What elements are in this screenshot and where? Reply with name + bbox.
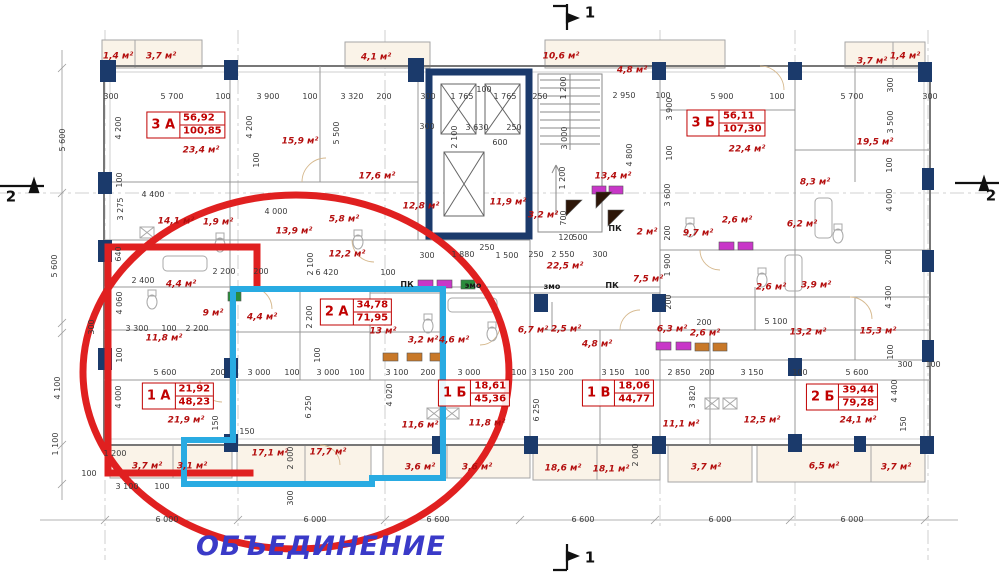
room-area-label: 1,4 м² [103, 53, 133, 62]
room-area-label: 11,1 м² [663, 421, 700, 430]
dimension-label: 300 [897, 361, 912, 369]
dimension-label-vertical: 100 [116, 347, 124, 362]
section-marker-number: 2 [986, 189, 996, 204]
dimension-label-vertical: 300 [887, 77, 895, 92]
apartment-area-living: 56,92 [180, 113, 225, 126]
apartment-box: 3 Б56,11107,30 [686, 110, 765, 137]
dimension-label: 6 600 [572, 516, 595, 524]
dimension-label: 3 630 [466, 124, 489, 132]
dimension-label: 6 000 [156, 516, 179, 524]
apartment-area-living: 39,44 [839, 385, 877, 398]
room-area-label: 17,7 м² [310, 449, 347, 458]
dimension-label: 100 [302, 93, 317, 101]
dimension-label: 3 150 [602, 369, 625, 377]
apartment-area-total: 44,77 [615, 394, 653, 406]
room-area-label: 6,3 м² [657, 326, 687, 335]
apartment-code: 3 А [147, 113, 180, 138]
dimension-label: 100 [380, 269, 395, 277]
room-area-label: 2,5 м² [551, 326, 581, 335]
dimension-label: 200 [210, 369, 225, 377]
room-area-label: 11,9 м² [490, 199, 527, 208]
apartment-area-total: 107,30 [720, 124, 765, 136]
room-area-label: 6,7 м² [518, 327, 548, 336]
dimension-label-vertical: 2 000 [632, 444, 640, 467]
room-area-label: 3,9 м² [801, 282, 831, 291]
dimension-label: 100 [284, 369, 299, 377]
dimension-label-vertical: 1 200 [559, 167, 567, 190]
dimension-label: 6 000 [709, 516, 732, 524]
room-area-label: 6,2 м² [787, 221, 817, 230]
room-area-label: 8,3 м² [800, 179, 830, 188]
apartment-areas: 18,0644,77 [615, 381, 653, 406]
dimension-label: 3 000 [317, 369, 340, 377]
room-area-label: 3,7 м² [146, 53, 176, 62]
dimension-label: 200 [558, 369, 573, 377]
room-area-label: 12,8 м² [403, 203, 440, 212]
dimension-label: 120 [558, 234, 573, 242]
room-area-label: 13,2 м² [790, 329, 827, 338]
dimension-label: 600 [492, 139, 507, 147]
dimension-label: 2 200 [186, 325, 209, 333]
apartment-areas: 56,11107,30 [720, 111, 765, 136]
room-area-label: 15,9 м² [282, 138, 319, 147]
section-marker-number: 1 [585, 551, 595, 566]
dimension-label: 100 [925, 361, 940, 369]
dimension-label-vertical: 5 600 [51, 255, 59, 278]
room-area-label: 21,9 м² [168, 417, 205, 426]
room-area-label: 4,6 м² [439, 337, 469, 346]
room-area-label: 17,6 м² [359, 173, 396, 182]
dimension-label-vertical: 2 200 [306, 306, 314, 329]
dimension-label: 3 150 [741, 369, 764, 377]
apartment-box: 3 А56,92100,85 [146, 112, 225, 139]
apartment-areas: 39,4479,28 [839, 385, 877, 410]
tech-label: эмо [465, 282, 482, 290]
dimension-label-vertical: 100 [116, 172, 124, 187]
room-area-label: 9 м² [203, 310, 224, 319]
room-area-label: 4,8 м² [617, 67, 647, 76]
dimension-label: 5 900 [711, 93, 734, 101]
room-area-label: 1,9 м² [203, 219, 233, 228]
room-area-label: 15,3 м² [860, 328, 897, 337]
merge-caption: ОБЪЕДИНЕНИЕ [196, 531, 446, 562]
dimension-label: 100 [154, 483, 169, 491]
dimension-label: 100 [511, 369, 526, 377]
room-area-label: 22,5 м² [547, 263, 584, 272]
dimension-label: 3 000 [248, 369, 271, 377]
tech-label: змо [544, 283, 561, 291]
room-area-label: 5,8 м² [329, 216, 359, 225]
dimension-label-vertical: 100 [314, 347, 322, 362]
apartment-code: 2 Б [807, 385, 839, 410]
dimension-label-vertical: 300 [88, 319, 96, 334]
dimension-label-vertical: 6 250 [533, 399, 541, 422]
dimension-label: 100 [215, 93, 230, 101]
dimension-label: 300 [592, 251, 607, 259]
room-area-label: 3,2 м² [408, 337, 438, 346]
dimension-label: 100 [634, 369, 649, 377]
dimension-label: 300 [419, 123, 434, 131]
apartment-area-total: 48,23 [176, 397, 214, 409]
room-area-label: 11,8 м² [146, 335, 183, 344]
room-area-label: 2,6 м² [756, 284, 786, 293]
dimension-label: 100 [349, 369, 364, 377]
dimension-label-vertical: 100 [886, 157, 894, 172]
dimension-label: 1 200 [104, 450, 127, 458]
apartment-area-living: 18,61 [471, 381, 509, 394]
dimension-label-vertical: 4 200 [115, 117, 123, 140]
dimension-label: 2 850 [668, 369, 691, 377]
room-area-label: 1,4 м² [890, 53, 920, 62]
apartment-code: 1 В [583, 381, 615, 406]
room-area-label: 9,7 м² [683, 230, 713, 239]
room-area-label: 6,5 м² [809, 463, 839, 472]
dimension-label: 4 400 [142, 191, 165, 199]
apartment-area-living: 18,06 [615, 381, 653, 394]
room-area-label: 13,4 м² [595, 173, 632, 182]
dimension-label: 300 [103, 93, 118, 101]
apartment-box: 1 Б18,6145,36 [438, 380, 510, 407]
dimension-label: 300 [922, 93, 937, 101]
room-area-label: 2,6 м² [722, 217, 752, 226]
room-area-label: 24,1 м² [840, 417, 877, 426]
apartment-code: 2 А [321, 300, 354, 325]
dimension-label: 3 320 [341, 93, 364, 101]
room-area-label: 3,6 м² [462, 464, 492, 473]
dimension-label-vertical: 2 100 [307, 253, 315, 276]
room-area-label: 19,5 м² [857, 139, 894, 148]
dimension-label: 300 [419, 252, 434, 260]
room-area-label: 13,9 м² [276, 228, 313, 237]
room-area-label: 7,5 м² [633, 276, 663, 285]
dimension-label: 250 [479, 244, 494, 252]
apartment-box: 1 В18,0644,77 [582, 380, 654, 407]
room-area-label: 18,6 м² [545, 465, 582, 474]
room-area-label: 4,1 м² [361, 54, 391, 63]
dimension-label: 1 765 [451, 93, 474, 101]
dimension-label-vertical: 100 [666, 145, 674, 160]
dimension-label: 6 600 [427, 516, 450, 524]
room-area-label: 2,6 м² [690, 330, 720, 339]
room-area-label: 3,1 м² [177, 463, 207, 472]
dimension-label: 6 000 [841, 516, 864, 524]
dimension-label-vertical: 300 [287, 490, 295, 505]
dimension-label-vertical: 200 [665, 294, 673, 309]
dimension-label-vertical: 2 100 [451, 126, 459, 149]
dimension-label-vertical: 3 000 [561, 127, 569, 150]
apartment-box: 2 Б39,4479,28 [806, 384, 878, 411]
room-area-label: 11,8 м² [469, 420, 506, 429]
dimension-label: 500 [572, 234, 587, 242]
dimension-label: 100 [161, 325, 176, 333]
dimension-label-vertical: 2 000 [287, 447, 295, 470]
dimension-label: 3 900 [257, 93, 280, 101]
apartment-area-total: 45,36 [471, 394, 509, 406]
dimension-label-vertical: 3 900 [666, 98, 674, 121]
tech-label: ПК [608, 225, 621, 233]
dimension-label: 200 [253, 268, 268, 276]
dimension-label: 3 300 [126, 325, 149, 333]
dimension-label: 2 950 [613, 92, 636, 100]
dimension-label-vertical: 3 500 [887, 111, 895, 134]
dimension-label-vertical: 200 [885, 249, 893, 264]
dimension-label: 2 400 [132, 277, 155, 285]
apartment-areas: 56,92100,85 [180, 113, 225, 138]
dimension-label: 5 700 [161, 93, 184, 101]
room-area-label: 11,6 м² [402, 422, 439, 431]
dimension-label-vertical: 4 000 [115, 386, 123, 409]
dimension-label: 3 150 [532, 369, 555, 377]
room-area-label: 4,4 м² [247, 314, 277, 323]
room-area-label: 2 м² [637, 229, 658, 238]
dimension-label-vertical: 4 060 [116, 292, 124, 315]
apartment-area-total: 71,95 [354, 313, 392, 325]
dimension-label-vertical: 200 [664, 225, 672, 240]
dimension-label-vertical: 640 [115, 246, 123, 261]
dimension-label-vertical: 100 [887, 344, 895, 359]
dimension-label-vertical: 5 600 [59, 129, 67, 152]
dimension-label-vertical: 3 820 [689, 386, 697, 409]
apartment-code: 3 Б [687, 111, 719, 136]
dimension-label-vertical: 4 200 [246, 116, 254, 139]
dimension-label: 2 550 [552, 251, 575, 259]
dimension-label: 1 500 [496, 252, 519, 260]
section-marker-number: 1 [585, 6, 595, 21]
dimension-label-vertical: 4 000 [886, 189, 894, 212]
dimension-label-vertical: 4 800 [626, 144, 634, 167]
dimension-label: 150 [239, 428, 254, 436]
dimension-label-vertical: 4 300 [885, 286, 893, 309]
dimension-label-vertical: 4 100 [54, 377, 62, 400]
room-area-label: 14,1 м² [158, 218, 195, 227]
apartment-areas: 21,9248,23 [176, 384, 214, 409]
room-area-label: 10,6 м² [543, 53, 580, 62]
room-area-label: 12,5 м² [744, 417, 781, 426]
dimension-label: 100 [81, 470, 96, 478]
apartment-area-total: 79,28 [839, 398, 877, 410]
room-area-label: 3,7 м² [857, 58, 887, 67]
dimension-label: 3 000 [458, 369, 481, 377]
dimension-label-vertical: 4 400 [891, 380, 899, 403]
dimension-label: 200 [699, 369, 714, 377]
dimension-label: 100 [476, 86, 491, 94]
dimension-label: 1 765 [494, 93, 517, 101]
plan-labels-layer: 1,4 м²3,7 м²4,1 м²10,6 м²4,8 м²3,7 м²1,4… [0, 0, 999, 574]
dimension-label-vertical: 700 [560, 210, 568, 225]
apartment-area-living: 34,78 [354, 300, 392, 313]
dimension-label: 200 [420, 369, 435, 377]
dimension-label: 6 000 [304, 516, 327, 524]
dimension-label: 3 100 [386, 369, 409, 377]
dimension-label: 5 600 [846, 369, 869, 377]
dimension-label-vertical: 4 020 [386, 384, 394, 407]
tech-label: ПК [400, 281, 413, 289]
room-area-label: 13 м² [370, 328, 397, 337]
dimension-label: 250 [506, 124, 521, 132]
room-area-label: 4,8 м² [582, 341, 612, 350]
apartment-area-living: 21,92 [176, 384, 214, 397]
dimension-label: 250 [532, 93, 547, 101]
room-area-label: 18,1 м² [593, 466, 630, 475]
room-area-label: 17,1 м² [252, 450, 289, 459]
dimension-label: 250 [528, 251, 543, 259]
apartment-box: 2 А34,7871,95 [320, 299, 392, 326]
dimension-label: 6 420 [316, 269, 339, 277]
apartment-area-total: 100,85 [180, 126, 225, 138]
room-area-label: 4,4 м² [166, 281, 196, 290]
room-area-label: 3,2 м² [528, 212, 558, 221]
room-area-label: 3,7 м² [132, 463, 162, 472]
dimension-label-vertical: 1 900 [664, 254, 672, 277]
dimension-label: 200 [376, 93, 391, 101]
dimension-label: 2 200 [213, 268, 236, 276]
room-area-label: 12,2 м² [329, 251, 366, 260]
dimension-label: 5 100 [765, 318, 788, 326]
apartment-areas: 34,7871,95 [354, 300, 392, 325]
dimension-label: 100 [769, 93, 784, 101]
dimension-label-vertical: 100 [253, 152, 261, 167]
dimension-label: 100 [792, 369, 807, 377]
apartment-box: 1 А21,9248,23 [142, 383, 214, 410]
room-area-label: 3,7 м² [881, 464, 911, 473]
apartment-code: 1 А [143, 384, 176, 409]
room-area-label: 3,7 м² [691, 464, 721, 473]
room-area-label: 23,4 м² [183, 147, 220, 156]
dimension-label: 3 100 [116, 483, 139, 491]
dimension-label-vertical: 3 275 [117, 198, 125, 221]
dimension-label-vertical: 3 600 [664, 184, 672, 207]
dimension-label-vertical: 1 200 [560, 77, 568, 100]
apartment-code: 1 Б [439, 381, 471, 406]
dimension-label-vertical: 150 [900, 416, 908, 431]
dimension-label: 200 [696, 319, 711, 327]
dimension-label: 1 880 [452, 251, 475, 259]
room-area-label: 3,6 м² [405, 464, 435, 473]
dimension-label-vertical: 6 250 [305, 396, 313, 419]
apartment-areas: 18,6145,36 [471, 381, 509, 406]
dimension-label-vertical: 1 100 [52, 433, 60, 456]
dimension-label-vertical: 5 500 [333, 122, 341, 145]
dimension-label: 5 600 [154, 369, 177, 377]
tech-label: ПК [605, 282, 618, 290]
room-area-label: 22,4 м² [729, 146, 766, 155]
apartment-area-living: 56,11 [720, 111, 765, 124]
dimension-label-vertical: 150 [212, 415, 220, 430]
section-marker-number: 2 [6, 190, 16, 205]
floor-plan-page: 1,4 м²3,7 м²4,1 м²10,6 м²4,8 м²3,7 м²1,4… [0, 0, 999, 574]
dimension-label: 300 [420, 93, 435, 101]
dimension-label: 4 000 [265, 208, 288, 216]
dimension-label: 5 700 [841, 93, 864, 101]
